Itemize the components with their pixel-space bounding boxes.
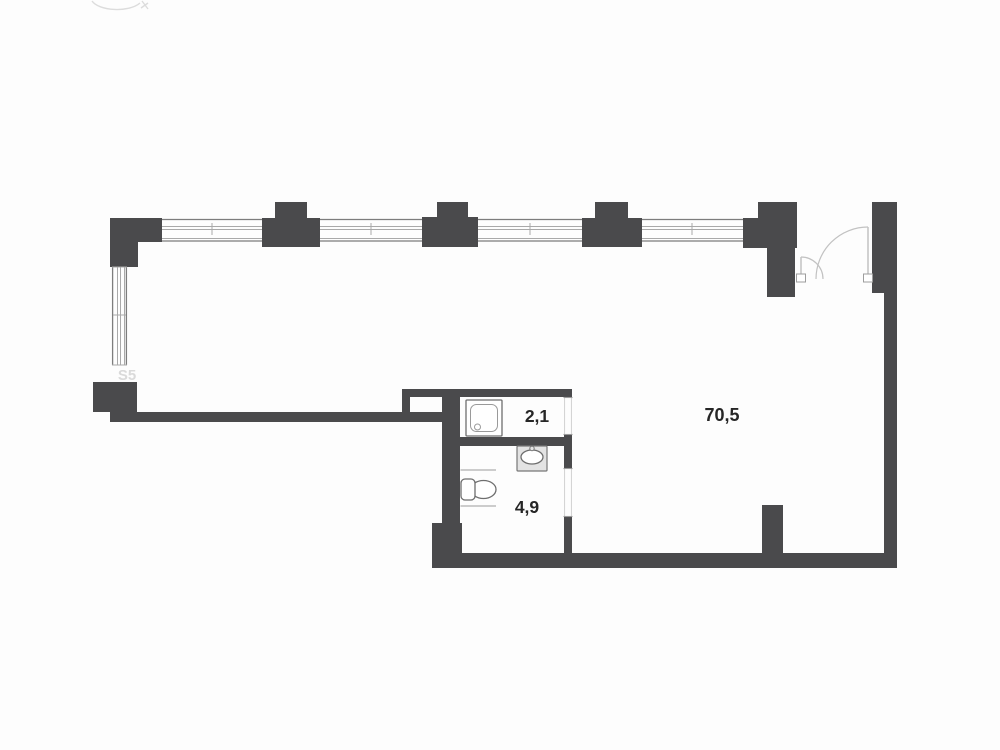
wall-segment bbox=[110, 218, 138, 267]
bathroom-left-wall bbox=[442, 397, 460, 523]
window-icon bbox=[642, 220, 743, 242]
wc-room-opening bbox=[564, 468, 573, 517]
room-area-label: 70,5 bbox=[704, 405, 739, 425]
wall-segment bbox=[110, 382, 137, 422]
wall-segment bbox=[884, 293, 897, 568]
wall-segment bbox=[872, 202, 897, 293]
duct-wall bbox=[402, 389, 410, 412]
entrance-door bbox=[797, 227, 873, 282]
bathroom-top-wall bbox=[443, 389, 572, 397]
left-window bbox=[112, 267, 127, 365]
watermark-text: S5 bbox=[118, 367, 136, 384]
bathroom-right-wall bbox=[564, 435, 572, 468]
bathroom-divider-wall bbox=[460, 437, 572, 446]
pillar bbox=[262, 218, 320, 247]
door-jamb bbox=[864, 274, 873, 282]
door-jamb bbox=[797, 274, 806, 282]
window-icon bbox=[162, 220, 262, 242]
logo-mark-icon bbox=[141, 1, 148, 9]
room-area-label: 2,1 bbox=[525, 406, 550, 426]
wall-segment bbox=[432, 553, 897, 568]
floor-plan-page: S5 70,5 2,1 4,9 bbox=[0, 0, 1000, 750]
pillar bbox=[422, 217, 478, 247]
pillar bbox=[743, 218, 797, 248]
window-icon bbox=[112, 267, 127, 365]
bathroom-corner bbox=[432, 523, 462, 568]
door-arc-icon bbox=[816, 227, 868, 279]
toilet-icon bbox=[461, 470, 497, 506]
bathroom-right-wall bbox=[564, 517, 572, 553]
pillar bbox=[582, 218, 642, 247]
floor-plan-drawing: S5 70,5 2,1 4,9 bbox=[0, 0, 1000, 750]
partial-logo bbox=[92, 1, 148, 10]
room-area-label: 4,9 bbox=[515, 497, 540, 517]
pillar bbox=[762, 505, 783, 555]
window-icon bbox=[478, 220, 582, 242]
pillar-cap bbox=[275, 202, 307, 219]
walls bbox=[93, 202, 897, 568]
pillar-cap bbox=[437, 202, 468, 219]
logo-arc-icon bbox=[92, 1, 140, 10]
pillar-cap bbox=[595, 202, 628, 219]
sink-icon bbox=[517, 446, 547, 471]
pillar-column bbox=[767, 245, 795, 297]
pillar-cap bbox=[758, 202, 797, 219]
shower-tray-icon bbox=[466, 400, 502, 436]
wall-segment bbox=[137, 412, 442, 422]
window-icon bbox=[320, 220, 422, 242]
shower-room-opening bbox=[564, 397, 573, 435]
